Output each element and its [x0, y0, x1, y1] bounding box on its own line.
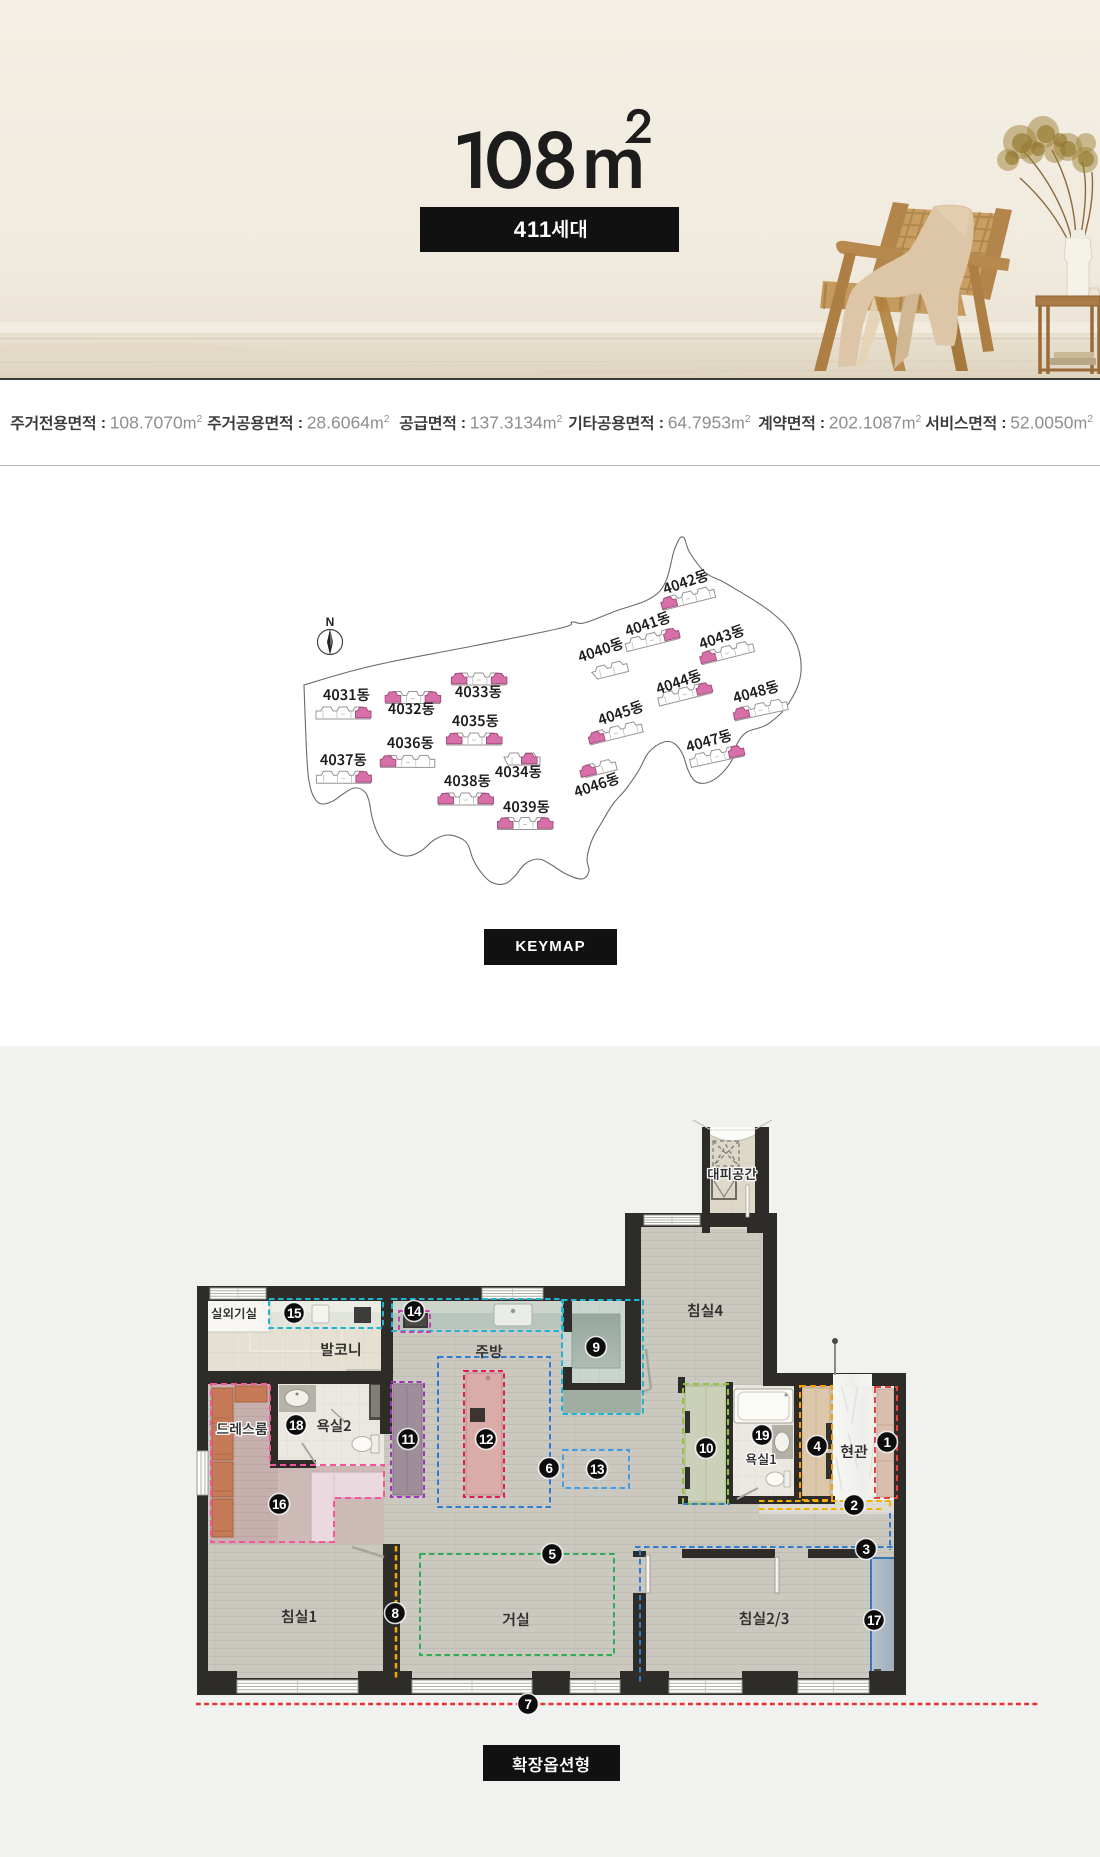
- svg-text:137.3134m2: 137.3134m2: [470, 413, 563, 433]
- svg-text:9: 9: [592, 1340, 599, 1355]
- svg-text:15: 15: [287, 1306, 302, 1321]
- svg-text::: :: [1001, 415, 1006, 432]
- svg-text:18: 18: [289, 1418, 304, 1433]
- svg-text:10: 10: [699, 1441, 713, 1456]
- svg-text:202.1087m2: 202.1087m2: [829, 413, 922, 433]
- svg-text:411: 411: [514, 217, 553, 242]
- svg-text:17: 17: [867, 1613, 881, 1628]
- svg-text:2: 2: [850, 1498, 857, 1513]
- svg-text:1: 1: [883, 1435, 891, 1450]
- svg-text::: :: [820, 415, 825, 432]
- svg-text:16: 16: [272, 1497, 287, 1512]
- svg-text::: :: [659, 415, 664, 432]
- svg-text:19: 19: [755, 1428, 769, 1443]
- svg-text:13: 13: [590, 1462, 605, 1477]
- svg-text:5: 5: [548, 1547, 556, 1562]
- svg-text::: :: [461, 415, 466, 432]
- svg-text:28.6064m2: 28.6064m2: [307, 413, 390, 433]
- svg-text:52.0050m2: 52.0050m2: [1010, 413, 1093, 433]
- svg-text:12: 12: [479, 1432, 493, 1447]
- svg-text::: :: [101, 415, 106, 432]
- svg-text:108.7070m2: 108.7070m2: [110, 413, 203, 433]
- svg-text:7: 7: [524, 1697, 531, 1712]
- svg-text:N: N: [326, 615, 335, 629]
- svg-text:64.7953m2: 64.7953m2: [668, 413, 751, 433]
- svg-text:8: 8: [391, 1606, 399, 1621]
- svg-text:11: 11: [401, 1432, 415, 1447]
- svg-text:3: 3: [862, 1542, 870, 1557]
- svg-text:4: 4: [813, 1439, 821, 1454]
- svg-text::: :: [298, 415, 303, 432]
- svg-text:6: 6: [545, 1461, 553, 1476]
- svg-text:14: 14: [407, 1304, 422, 1319]
